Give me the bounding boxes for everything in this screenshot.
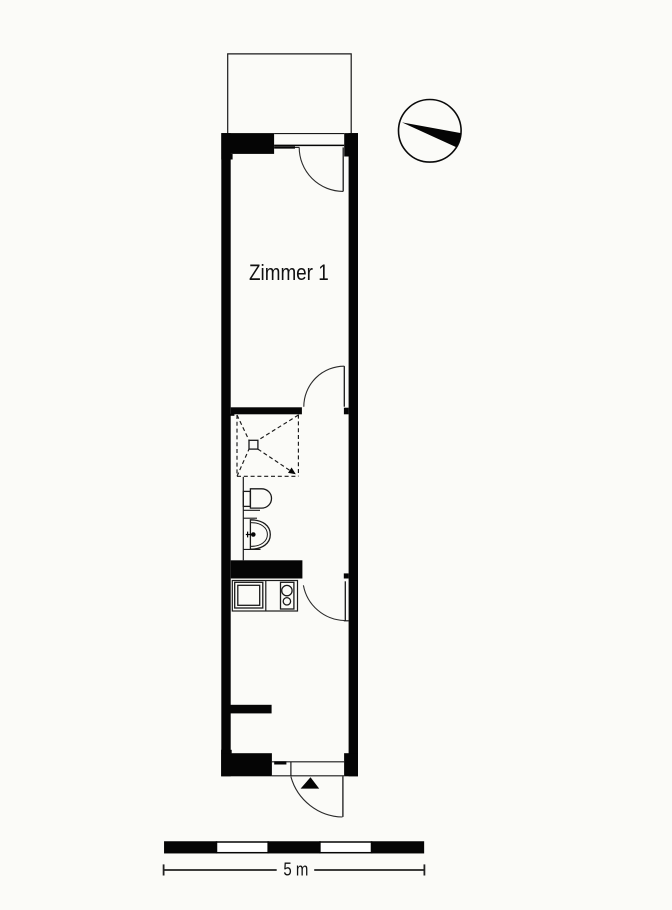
svg-text:5 m: 5 m	[283, 860, 308, 880]
svg-text:Zimmer 1: Zimmer 1	[249, 260, 329, 285]
